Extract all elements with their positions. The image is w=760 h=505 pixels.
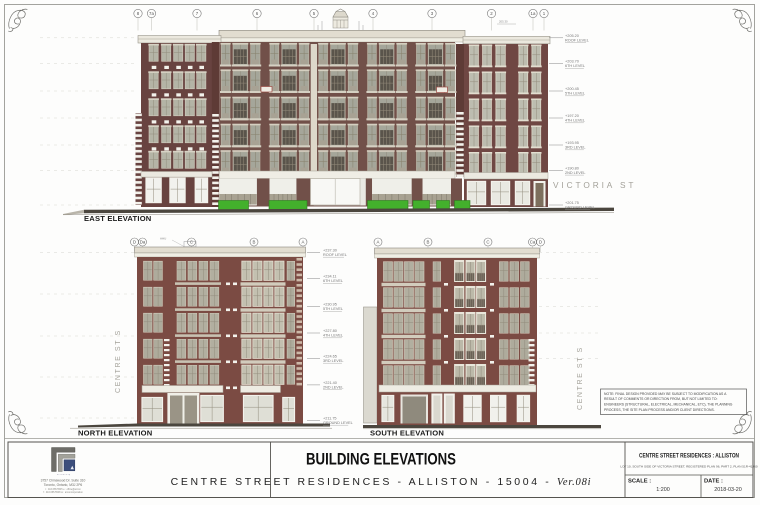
svg-text:Da: Da — [140, 240, 146, 245]
svg-text:3RD LEVEL: 3RD LEVEL — [323, 359, 343, 363]
svg-text:SOUTH ELEVATION: SOUTH ELEVATION — [370, 429, 444, 438]
svg-text:5TH LEVEL: 5TH LEVEL — [565, 92, 585, 96]
svg-text:LOT 10, SOUTH SIDE OF VICTORIA: LOT 10, SOUTH SIDE OF VICTORIA STREET, R… — [620, 465, 758, 469]
svg-text:+211.75: +211.75 — [323, 417, 337, 421]
svg-text:ENGINEERS (STRUCTURAL, ELECTRI: ENGINEERS (STRUCTURAL, ELECTRICAL, MECHA… — [604, 403, 733, 407]
svg-text:5TH LEVEL: 5TH LEVEL — [323, 307, 343, 311]
svg-text:Ca: Ca — [530, 240, 536, 245]
svg-text:+201.75: +201.75 — [565, 201, 579, 205]
svg-text:VICTORIA ST: VICTORIA ST — [553, 180, 636, 190]
svg-text:ROOF LEVEL: ROOF LEVEL — [323, 253, 347, 257]
svg-text:+224.65: +224.65 — [323, 355, 337, 359]
svg-text:1a: 1a — [531, 11, 536, 16]
svg-text:NORTH ELEVATION: NORTH ELEVATION — [78, 429, 152, 438]
svg-text:CENTRE ST S: CENTRE ST S — [577, 346, 584, 410]
svg-text:SCALE :: SCALE : — [628, 479, 651, 485]
svg-text:6TH LEVEL: 6TH LEVEL — [323, 279, 343, 283]
svg-text:BUILDING ELEVATIONS: BUILDING ELEVATIONS — [306, 451, 456, 469]
svg-text:+230.95: +230.95 — [323, 303, 337, 307]
svg-text:DATE :: DATE : — [704, 479, 723, 485]
svg-text:3RD LEVEL: 3RD LEVEL — [565, 146, 585, 150]
svg-text:+205.20: +205.20 — [565, 34, 579, 38]
svg-text:EAST ELEVATION: EAST ELEVATION — [84, 214, 152, 223]
svg-text:+237.30: +237.30 — [323, 249, 337, 253]
svg-text:C: C — [486, 240, 489, 245]
svg-text:NOTE: FINAL DESIGN PROVIDED MA: NOTE: FINAL DESIGN PROVIDED MAY BE SUBJE… — [604, 392, 727, 396]
svg-text:+193.95: +193.95 — [565, 141, 579, 145]
svg-text:GROUND LEVEL: GROUND LEVEL — [565, 206, 595, 210]
svg-text:PROCESS, THE SITE PLAN PROCESS: PROCESS, THE SITE PLAN PROCESS AND/OR CL… — [604, 408, 715, 412]
svg-text:4TH LEVEL: 4TH LEVEL — [565, 119, 585, 123]
svg-text:A: A — [302, 240, 305, 245]
svg-text:4TH LEVEL: 4TH LEVEL — [323, 334, 343, 338]
svg-text:+221.40: +221.40 — [323, 381, 337, 385]
svg-text:A: A — [377, 240, 380, 245]
svg-text:+190.80: +190.80 — [565, 167, 579, 171]
svg-text:D: D — [133, 240, 136, 245]
svg-text:2018-03-20: 2018-03-20 — [714, 487, 742, 493]
svg-text:a r c o n c o r p: a r c o n c o r p — [57, 474, 71, 476]
svg-text:GROUND LEVEL: GROUND LEVEL — [323, 421, 353, 425]
svg-text:CENTRE ST S: CENTRE ST S — [115, 329, 122, 393]
svg-text:1:200: 1:200 — [656, 487, 670, 493]
svg-text:+203.70: +203.70 — [565, 60, 579, 64]
svg-text:AHU: AHU — [160, 237, 166, 241]
svg-text:CENTRE STREET RESIDENCES - ALL: CENTRE STREET RESIDENCES - ALLISTON - 15… — [171, 476, 592, 488]
svg-text:D: D — [539, 240, 542, 245]
svg-text:CENTRE STREET RESIDENCES : ALL: CENTRE STREET RESIDENCES : ALLISTON — [639, 454, 739, 460]
svg-text:B: B — [253, 240, 256, 245]
svg-text:RESULT OF COMMENTS OR DIRE: RESULT OF COMMENTS OR DIRECTION FROM, BU… — [604, 397, 717, 401]
svg-text:+227.80: +227.80 — [323, 329, 337, 333]
svg-text:205.30: 205.30 — [499, 20, 508, 24]
svg-text:+197.20: +197.20 — [565, 114, 579, 118]
svg-text:7a: 7a — [149, 11, 154, 16]
svg-text:f : 416.665.5548 w : arcon: f : 416.665.5548 w : arconcorporation — [43, 491, 83, 494]
svg-text:Toronto, Ontario, M3J 2P6: Toronto, Ontario, M3J 2P6 — [44, 483, 83, 487]
svg-text:+234.11: +234.11 — [323, 275, 337, 279]
svg-text:2ND LEVEL: 2ND LEVEL — [323, 386, 343, 390]
svg-text:C: C — [190, 240, 193, 245]
svg-text:6TH LEVEL: 6TH LEVEL — [565, 64, 585, 68]
svg-text:2ND LEVEL: 2ND LEVEL — [565, 171, 585, 175]
svg-text:3757 Chinawood Dr. Suite 310: 3757 Chinawood Dr. Suite 310 — [41, 479, 86, 483]
svg-text:B: B — [427, 240, 430, 245]
svg-text:ROOF LEVEL: ROOF LEVEL — [565, 38, 589, 42]
svg-text:+200.45: +200.45 — [565, 87, 579, 91]
